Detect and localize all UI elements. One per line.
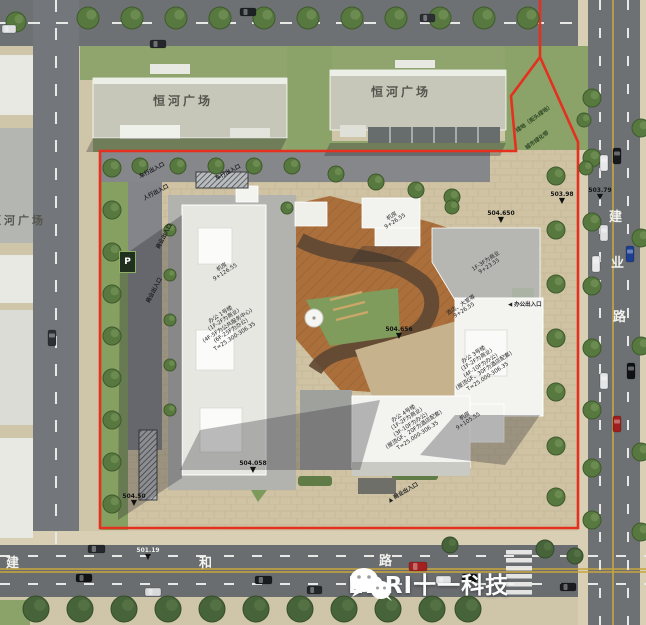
wechat-icon [348,566,394,602]
watermark: EDRI十一科技 [348,566,509,600]
level-marker-icon: ▼ [112,499,156,507]
elevation-marker: 503.79▼ [578,188,622,201]
elevation-marker: 504.50▼ [112,494,156,507]
neighbor-building-label: 恒河广场 [0,214,46,227]
road-name-east: 路 [613,310,626,326]
arrow-left-icon: ◀ [508,302,512,308]
neighbor-building-label: 恒河广场 [153,94,213,108]
level-marker-icon: ▼ [126,553,170,561]
elevation-marker: 504.650▼ [479,211,523,224]
elevation-marker: 504.058▼ [231,461,275,474]
road-name-south: 建 [6,556,19,572]
road-name-east: 业 [611,256,624,272]
site-plan-graphics [0,0,646,625]
elevation-marker: 501.19▼ [126,548,170,561]
level-marker-icon: ▼ [578,193,622,201]
parking-sign: P [119,251,136,273]
level-marker-icon: ▼ [479,216,523,224]
road-name-east: 建 [609,210,622,226]
level-marker-icon: ▼ [231,466,275,474]
site-plan: 恒河广场 恒河广场 恒河广场 建 和 路 建 业 路 503.98▼ 504.6… [0,0,646,625]
road-name-south: 和 [199,556,212,572]
neighbor-building-label: 恒河广场 [371,85,431,99]
entrance-label: ◀ 办公出入口 [508,300,542,308]
